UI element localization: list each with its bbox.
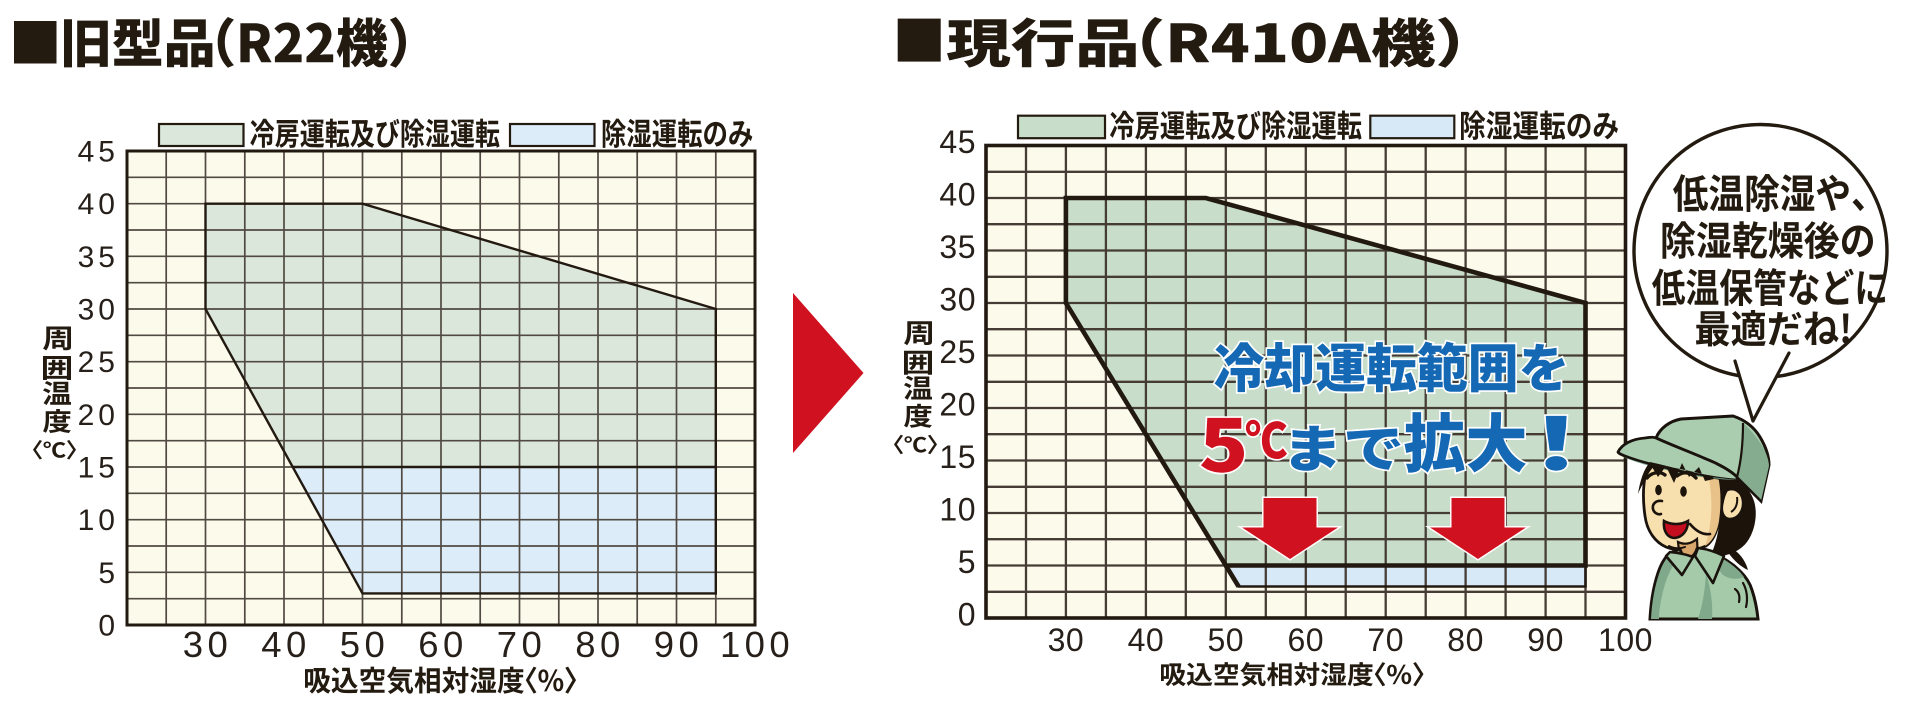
svg-text:30: 30 xyxy=(939,282,976,318)
svg-text:45: 45 xyxy=(78,136,119,169)
svg-text:90: 90 xyxy=(1527,622,1564,658)
svg-text:15: 15 xyxy=(939,439,976,475)
svg-text:100: 100 xyxy=(720,624,794,665)
svg-text:50: 50 xyxy=(340,624,389,665)
svg-text:20: 20 xyxy=(939,387,976,423)
svg-text:35: 35 xyxy=(939,229,976,265)
svg-text:80: 80 xyxy=(575,624,624,665)
svg-text:30: 30 xyxy=(78,294,119,327)
svg-text:40: 40 xyxy=(261,624,310,665)
svg-text:25: 25 xyxy=(78,346,119,379)
svg-text:45: 45 xyxy=(939,124,976,160)
svg-text:90: 90 xyxy=(654,624,703,665)
svg-text:5: 5 xyxy=(958,544,976,580)
svg-text:60: 60 xyxy=(418,624,467,665)
svg-text:40: 40 xyxy=(1128,622,1165,658)
svg-text:5: 5 xyxy=(98,557,119,590)
svg-text:40: 40 xyxy=(939,177,976,213)
svg-text:35: 35 xyxy=(78,241,119,274)
svg-text:40: 40 xyxy=(78,188,119,221)
svg-text:30: 30 xyxy=(1048,622,1085,658)
svg-text:100: 100 xyxy=(1598,622,1653,658)
svg-text:0: 0 xyxy=(958,597,976,633)
svg-text:70: 70 xyxy=(1367,622,1404,658)
svg-text:20: 20 xyxy=(78,399,119,432)
svg-text:10: 10 xyxy=(939,492,976,528)
svg-text:0: 0 xyxy=(98,610,119,643)
svg-text:15: 15 xyxy=(78,452,119,485)
svg-text:80: 80 xyxy=(1447,622,1484,658)
svg-text:60: 60 xyxy=(1288,622,1325,658)
svg-text:25: 25 xyxy=(939,334,976,370)
svg-text:70: 70 xyxy=(497,624,546,665)
svg-text:50: 50 xyxy=(1208,622,1245,658)
svg-text:30: 30 xyxy=(183,624,232,665)
svg-text:10: 10 xyxy=(78,504,119,537)
